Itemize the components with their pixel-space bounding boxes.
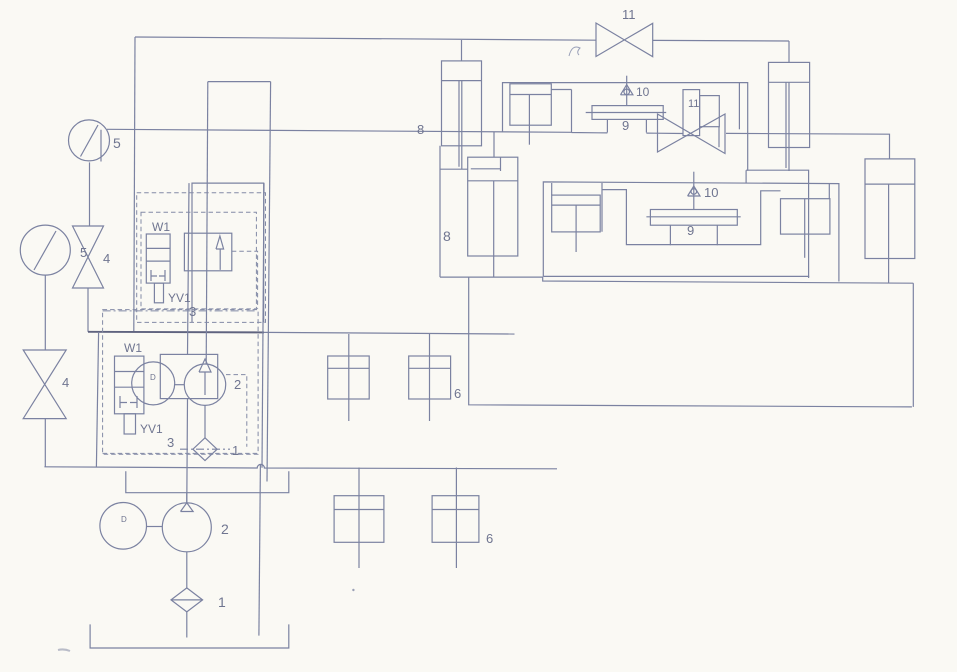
svg-text:2: 2 [234,377,241,392]
svg-text:YV1: YV1 [140,422,163,436]
svg-text:9: 9 [622,118,629,133]
svg-text:6: 6 [486,531,493,546]
svg-text:1: 1 [232,443,239,458]
svg-text:D: D [150,373,156,382]
svg-text:4: 4 [103,251,110,266]
svg-text:2: 2 [221,521,229,537]
svg-text:10: 10 [636,85,650,99]
svg-text:8: 8 [443,228,451,244]
svg-text:W1: W1 [152,220,170,234]
svg-text:W1: W1 [124,341,142,355]
svg-text:3: 3 [167,435,174,450]
svg-text:11: 11 [622,7,636,22]
svg-text:5: 5 [113,135,121,151]
svg-text:10: 10 [704,185,718,200]
svg-text:11: 11 [688,98,699,110]
svg-text:4: 4 [62,375,69,390]
svg-text:3: 3 [189,304,196,319]
svg-text:YV1: YV1 [168,291,191,305]
svg-text:5: 5 [80,245,87,260]
svg-text:9: 9 [687,223,694,238]
svg-text:D: D [121,515,127,524]
svg-text:8: 8 [417,122,424,137]
svg-text:6: 6 [454,386,461,401]
svg-text:1: 1 [218,594,226,610]
